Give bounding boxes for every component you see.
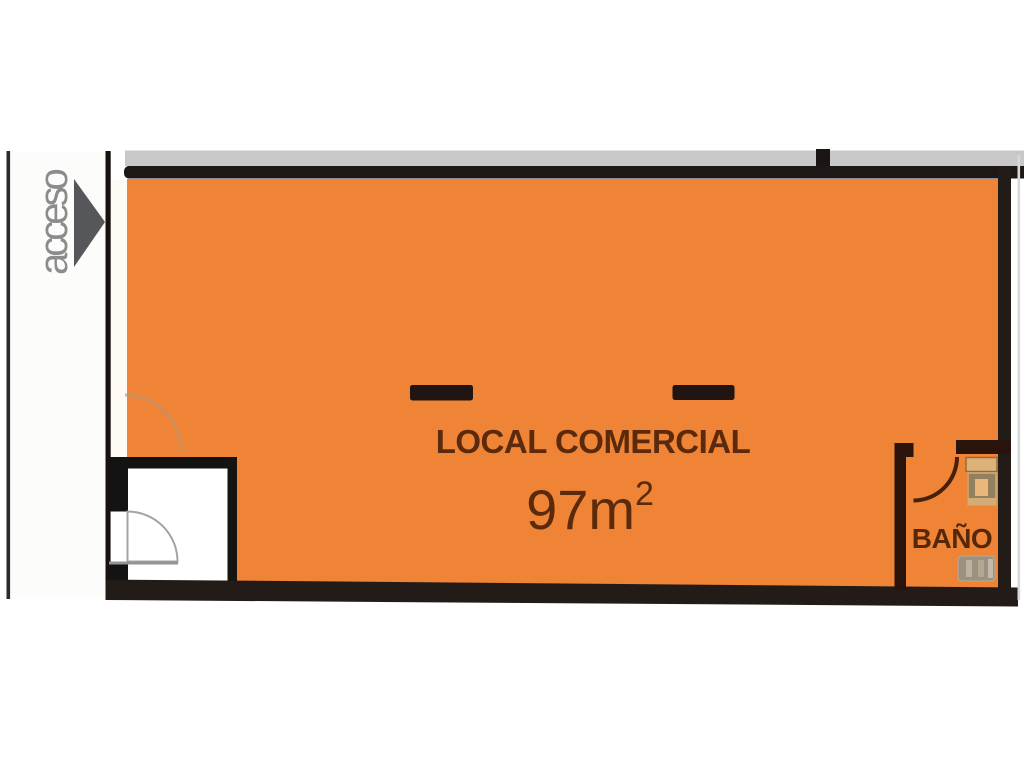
- svg-text:acceso: acceso: [32, 170, 76, 275]
- svg-text:97m2: 97m2: [526, 475, 654, 541]
- svg-text:LOCAL COMERCIAL: LOCAL COMERCIAL: [436, 423, 751, 460]
- svg-text:BAÑO: BAÑO: [912, 523, 992, 554]
